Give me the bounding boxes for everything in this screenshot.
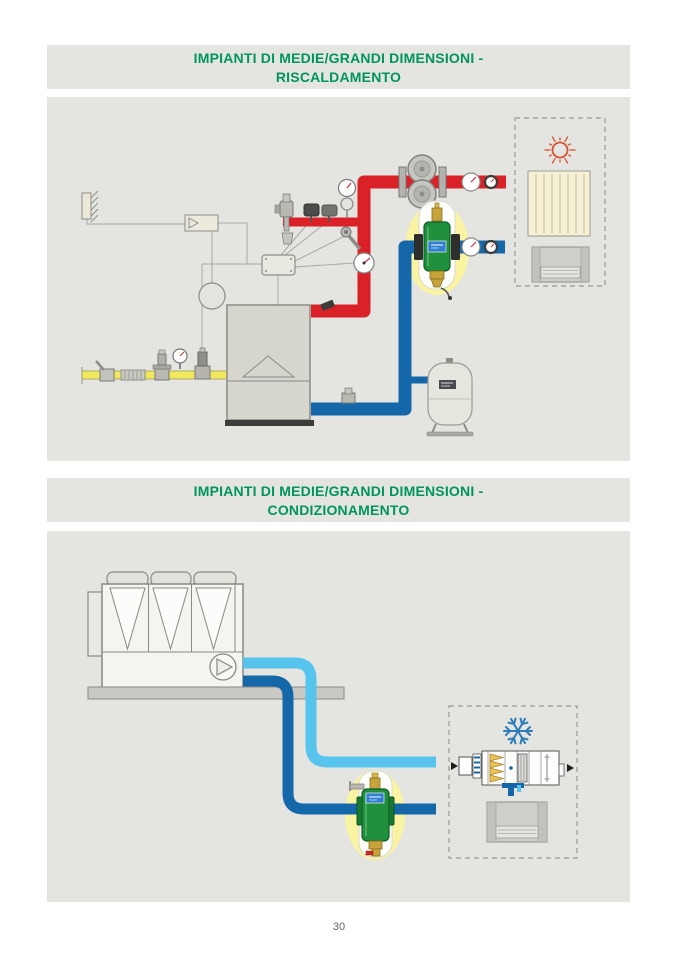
radiator <box>528 171 590 236</box>
air-inlet-arrow-icon <box>451 762 458 770</box>
air-handling-unit <box>451 751 574 796</box>
expansion-vessel <box>427 358 473 436</box>
outdoor-temperature-sensor <box>82 191 98 222</box>
return-pipe <box>311 247 505 409</box>
emitters-zone <box>515 118 605 286</box>
section-title-heating-line1: IMPIANTI DI MEDIE/GRANDI DIMENSIONI - <box>47 49 630 68</box>
pressure-gauge-with-siphon <box>339 180 356 219</box>
boiler <box>225 305 314 426</box>
thermometer <box>354 253 374 273</box>
cooling-diagram <box>47 531 630 902</box>
climatic-regulator <box>185 215 218 231</box>
fan-coil <box>487 802 547 842</box>
control-wiring <box>87 219 355 348</box>
chiller-pump-icon <box>210 654 236 680</box>
gas-pressure-regulator <box>153 350 171 380</box>
immersion-probe <box>341 227 360 249</box>
air-outlet-arrow-icon <box>567 764 574 772</box>
snowflake-icon <box>504 717 532 745</box>
cooling-zone <box>449 706 577 858</box>
catalog-page: IMPIANTI DI MEDIE/GRANDI DIMENSIONI - RI… <box>0 0 678 959</box>
heating-diagram-panel <box>47 97 630 461</box>
flow-gauge-small <box>485 176 497 188</box>
section-title-cooling-line2: CONDIZIONAMENTO <box>47 501 630 520</box>
return-thermometer <box>462 238 480 256</box>
gas-line <box>82 348 227 384</box>
fan-coil <box>532 247 589 282</box>
drain-valve <box>342 388 355 403</box>
flow-thermometer <box>462 173 480 191</box>
gas-pressure-gauge <box>173 349 187 369</box>
section-title-cooling: IMPIANTI DI MEDIE/GRANDI DIMENSIONI - CO… <box>47 478 630 522</box>
gas-flex-connector <box>121 370 145 380</box>
heating-diagram <box>47 97 630 461</box>
section-title-heating-line2: RISCALDAMENTO <box>47 68 630 87</box>
return-gauge-small <box>485 241 497 253</box>
page-number: 30 <box>0 921 678 933</box>
gas-solenoid-valve <box>195 348 210 379</box>
twin-circulator-pump <box>399 155 446 208</box>
wiring-junction-box <box>262 255 295 275</box>
section-title-heating: IMPIANTI DI MEDIE/GRANDI DIMENSIONI - RI… <box>47 45 630 89</box>
cooling-diagram-panel <box>47 531 630 902</box>
section-title-cooling-line1: IMPIANTI DI MEDIE/GRANDI DIMENSIONI - <box>47 482 630 501</box>
flue-connection <box>199 283 225 309</box>
chilled-return-pipe <box>243 681 436 809</box>
sun-icon <box>545 137 576 164</box>
